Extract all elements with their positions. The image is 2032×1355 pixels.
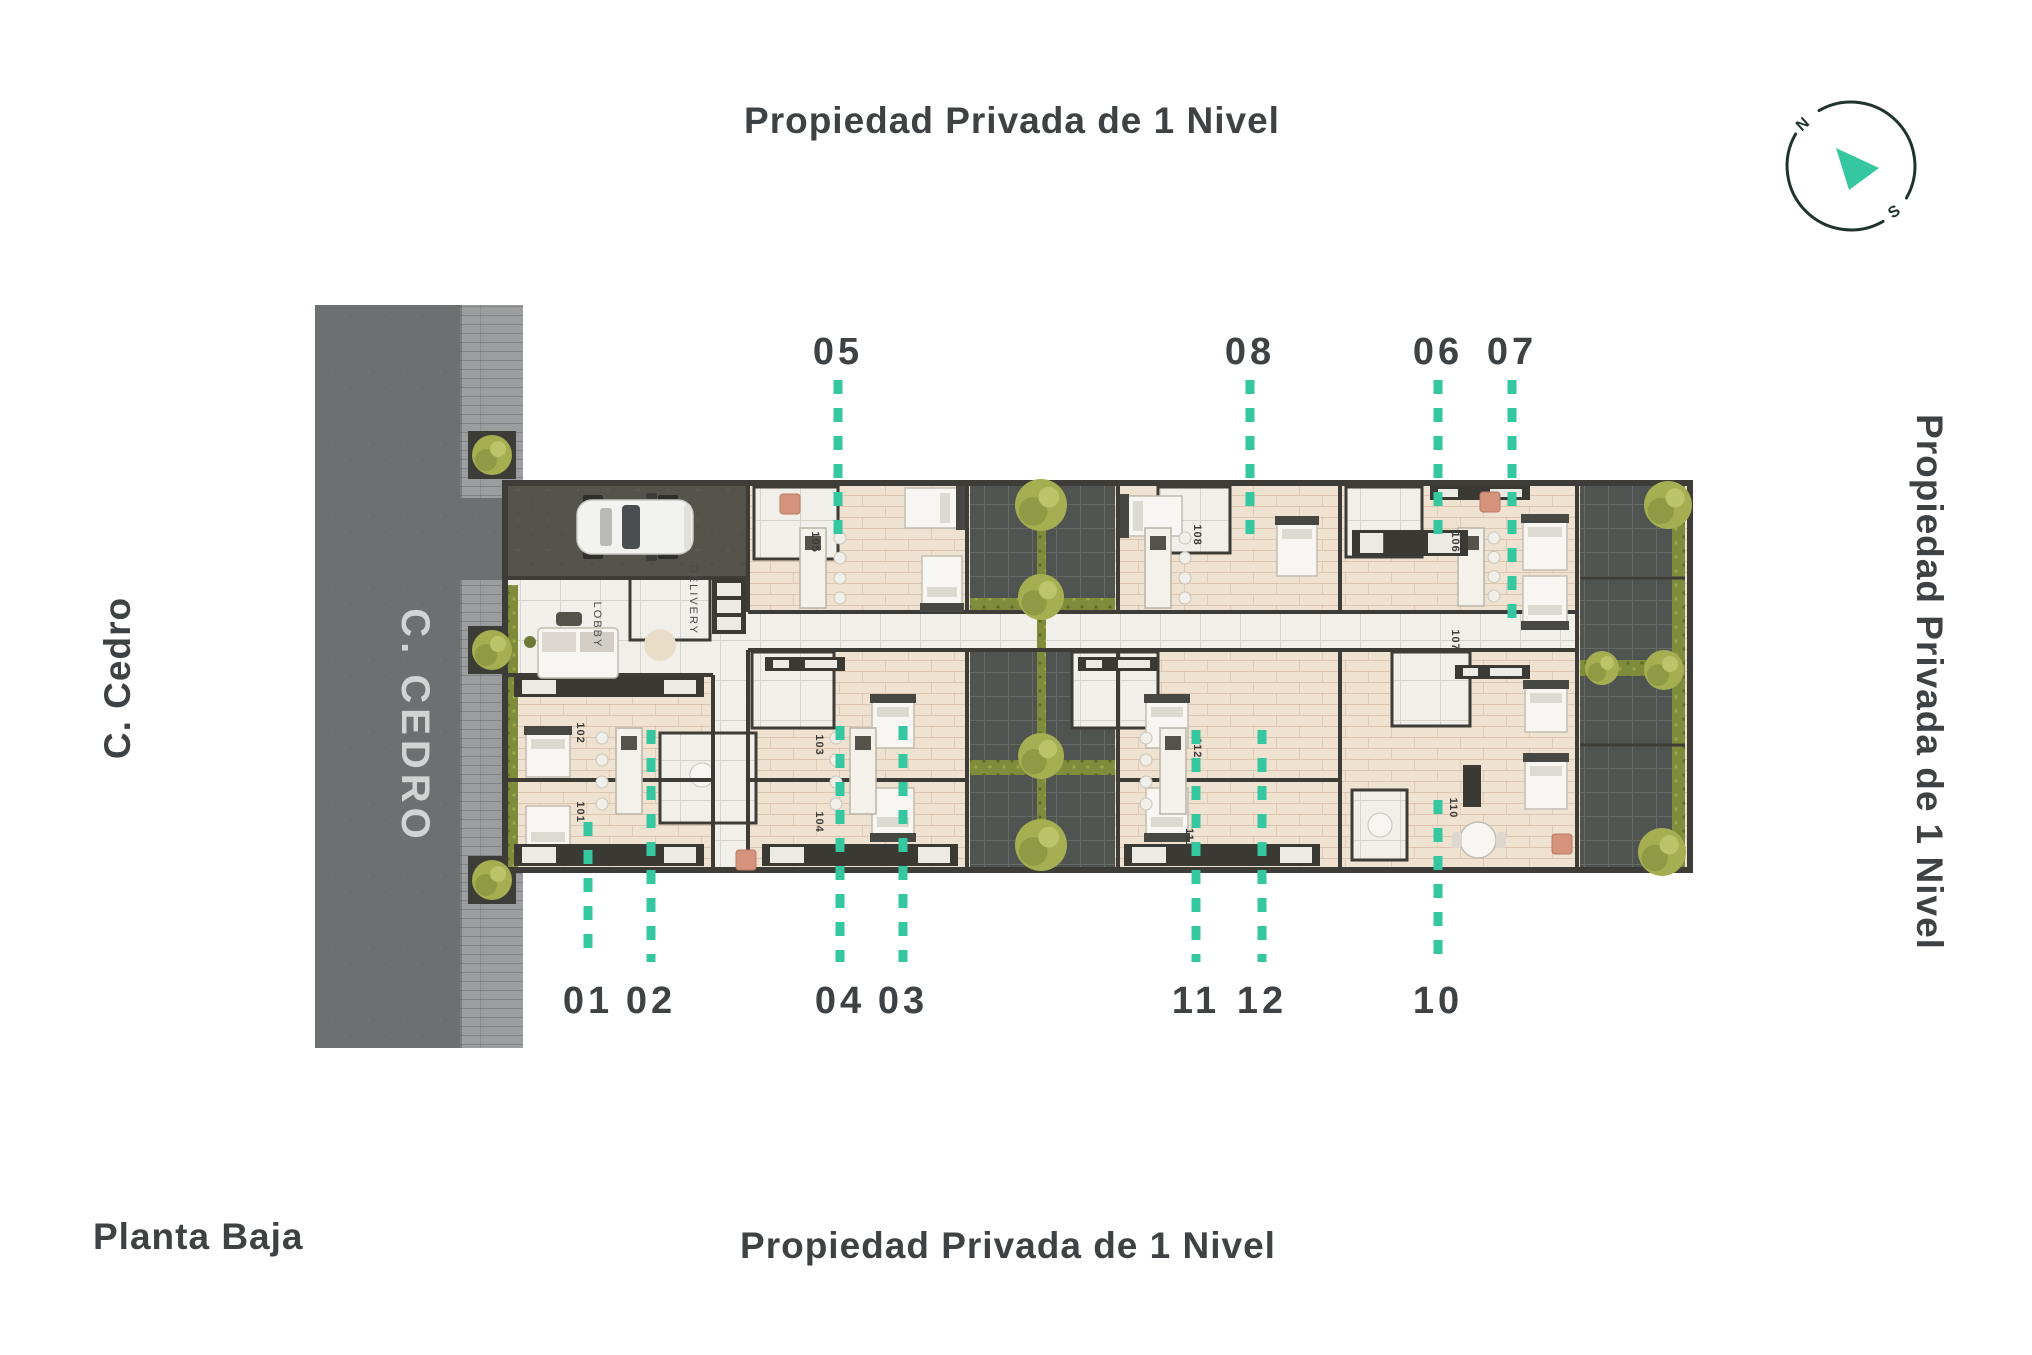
circle xyxy=(490,441,506,457)
driveway xyxy=(460,498,507,580)
appliance xyxy=(664,847,696,863)
bed-headboard xyxy=(1275,516,1319,525)
bed-headboard xyxy=(920,603,964,612)
bed xyxy=(920,556,964,612)
locker-slot xyxy=(717,617,741,630)
bed xyxy=(1523,680,1569,732)
building: LOBBY DELIVERY 1051081061071101021011031… xyxy=(505,483,1690,870)
street-asphalt xyxy=(315,305,460,1048)
stool xyxy=(1179,592,1191,604)
callout-label-11: 11 xyxy=(1172,980,1220,1022)
appliance xyxy=(773,660,789,668)
appliance xyxy=(522,680,556,694)
tree-icon xyxy=(472,630,512,670)
plant-pot xyxy=(524,636,536,648)
compass-needle-icon xyxy=(1836,148,1879,190)
counter xyxy=(1124,844,1320,866)
stool xyxy=(1179,552,1191,564)
tree-icon xyxy=(1644,650,1684,690)
circle xyxy=(1460,822,1496,858)
terracotta-pot xyxy=(1480,492,1500,512)
lobby-rug xyxy=(644,629,676,661)
room-number-102: 102 xyxy=(574,722,586,743)
callout-label-06: 06 xyxy=(1413,331,1463,373)
bed-headboard xyxy=(870,694,916,703)
lobby-armchair xyxy=(556,612,582,626)
title-right: Propiedad Privada de 1 Nivel xyxy=(1909,414,1950,950)
callout-label-05: 05 xyxy=(813,331,863,373)
circle xyxy=(1666,488,1685,507)
counter xyxy=(762,844,958,866)
rect xyxy=(1525,684,1567,732)
street-name-label: C. Cedro xyxy=(97,597,138,759)
callout-label-01: 01 xyxy=(563,980,613,1022)
stool xyxy=(830,798,842,810)
bed xyxy=(524,726,572,777)
stool xyxy=(834,552,846,564)
rect xyxy=(1523,518,1567,570)
bed-headboard xyxy=(1521,514,1569,523)
bed xyxy=(870,788,916,842)
bed-pillow xyxy=(1151,707,1183,717)
room-number-106: 106 xyxy=(1449,531,1461,552)
tree-icon xyxy=(1638,828,1686,876)
delivery-lockers xyxy=(712,578,746,634)
cooktop xyxy=(1165,736,1181,750)
counter xyxy=(514,677,704,697)
appliance xyxy=(805,660,837,668)
rect xyxy=(1525,757,1567,809)
counter xyxy=(1455,665,1530,679)
tree-icon xyxy=(472,435,512,475)
bed-pillow xyxy=(1133,501,1143,531)
stool xyxy=(834,572,846,584)
bed xyxy=(1275,516,1319,576)
appliance xyxy=(1086,660,1102,668)
terracotta-pot xyxy=(780,494,800,514)
bed-headboard xyxy=(524,726,572,735)
street-road-label: C. CEDRO xyxy=(393,608,437,844)
stool xyxy=(1140,754,1152,766)
tree-icon xyxy=(1018,733,1064,779)
chair xyxy=(1452,832,1462,848)
bed-pillow xyxy=(531,739,565,749)
cooktop xyxy=(621,736,637,750)
car-windshield xyxy=(622,505,640,549)
stool xyxy=(596,732,608,744)
car xyxy=(577,493,693,561)
bed-pillow xyxy=(1528,527,1562,537)
circle xyxy=(490,866,506,882)
appliance xyxy=(1280,847,1312,863)
rect xyxy=(905,488,961,528)
rect xyxy=(1523,576,1567,626)
counter xyxy=(1463,765,1481,807)
tree-icon xyxy=(1644,481,1692,529)
room-number-105: 105 xyxy=(809,531,821,552)
circle xyxy=(1038,827,1059,848)
room-number-110: 110 xyxy=(1447,798,1459,819)
curb-line xyxy=(460,305,462,1048)
bed-pillow xyxy=(940,493,950,523)
locker-slot xyxy=(717,583,741,596)
compass-ring xyxy=(1819,102,1915,198)
room-number-101: 101 xyxy=(574,801,586,822)
lobby-label: LOBBY xyxy=(591,602,603,649)
bed xyxy=(1521,576,1569,630)
callout-label-07: 07 xyxy=(1487,331,1537,373)
bed xyxy=(905,486,965,530)
bed-pillow xyxy=(1528,605,1562,615)
bed xyxy=(1523,753,1569,809)
bathtub xyxy=(690,763,714,787)
terracotta-pot xyxy=(1552,834,1572,854)
room-number-103: 103 xyxy=(813,734,825,755)
compass-south-label: S xyxy=(1885,202,1904,222)
sofa-cushion xyxy=(542,632,576,652)
callout-label-10: 10 xyxy=(1413,980,1463,1022)
stool xyxy=(596,798,608,810)
chair xyxy=(1496,832,1506,848)
tree-icon xyxy=(1015,479,1067,531)
appliance xyxy=(1463,668,1478,676)
counter xyxy=(1078,657,1158,671)
bathtub xyxy=(1368,813,1392,837)
appliance xyxy=(1490,668,1522,676)
stool xyxy=(1179,572,1191,584)
stool xyxy=(1179,532,1191,544)
stool xyxy=(1140,732,1152,744)
floorplan-canvas: C. CEDRO xyxy=(0,0,2032,1355)
cooktop xyxy=(1150,536,1166,550)
circle xyxy=(1039,740,1057,758)
rect xyxy=(872,788,914,838)
callout-label-03: 03 xyxy=(878,980,928,1022)
floor-name-label: Planta Baja xyxy=(93,1216,303,1257)
callout-label-04: 04 xyxy=(815,980,865,1022)
tree-icon xyxy=(472,860,512,900)
locker-slot xyxy=(717,600,741,613)
stool xyxy=(596,776,608,788)
bed-pillow xyxy=(1151,817,1183,827)
cooktop xyxy=(855,736,871,750)
rect xyxy=(1463,765,1481,807)
room-number-107: 107 xyxy=(1449,629,1461,650)
street-area: C. CEDRO xyxy=(315,305,523,1048)
counter xyxy=(765,657,845,671)
tree-icon xyxy=(1018,574,1064,620)
car-rear-window xyxy=(600,508,612,546)
bed xyxy=(1521,514,1569,570)
bed-pillow xyxy=(1530,766,1562,776)
room-number-104: 104 xyxy=(813,811,825,832)
bathroom-block xyxy=(1392,652,1470,726)
title-bottom: Propiedad Privada de 1 Nivel xyxy=(740,1225,1276,1266)
bed-headboard xyxy=(1144,694,1190,703)
appliance xyxy=(1118,660,1150,668)
stool xyxy=(1488,590,1500,602)
counter xyxy=(514,844,704,866)
tree-icon xyxy=(1585,651,1619,685)
stool xyxy=(1140,798,1152,810)
compass-north-label: N xyxy=(1793,114,1813,134)
circle xyxy=(1039,581,1057,599)
rect xyxy=(1277,520,1317,576)
bed-headboard xyxy=(956,486,965,530)
stool xyxy=(596,754,608,766)
car-mirror-left xyxy=(646,493,657,499)
bed-headboard xyxy=(870,833,916,842)
bed-pillow xyxy=(927,587,957,597)
callout-label-08: 08 xyxy=(1225,331,1275,373)
bed-headboard xyxy=(1521,621,1569,630)
stool xyxy=(1488,532,1500,544)
bed-pillow xyxy=(1282,529,1312,539)
bed-headboard xyxy=(1523,680,1569,689)
circle xyxy=(490,636,506,652)
callout-label-02: 02 xyxy=(626,980,676,1022)
bed xyxy=(870,694,916,748)
stool xyxy=(834,592,846,604)
patio-green-spine xyxy=(1037,486,1046,868)
title-top: Propiedad Privada de 1 Nivel xyxy=(744,100,1280,141)
circle xyxy=(1660,835,1679,854)
bed-pillow xyxy=(1530,693,1562,703)
stool xyxy=(1488,571,1500,583)
bed-pillow xyxy=(877,707,909,717)
appliance xyxy=(522,847,556,863)
stool xyxy=(1140,776,1152,788)
rect xyxy=(922,556,962,608)
circle xyxy=(1038,487,1059,508)
bed-headboard xyxy=(1120,494,1129,538)
bed-headboard xyxy=(1523,753,1569,762)
appliance xyxy=(918,847,950,863)
appliance xyxy=(1360,533,1383,553)
callout-label-12: 12 xyxy=(1237,980,1287,1022)
room-number-108: 108 xyxy=(1191,524,1203,545)
circle xyxy=(1662,656,1678,672)
bed-pillow xyxy=(531,832,565,842)
stool xyxy=(1488,551,1500,563)
terracotta-pot xyxy=(736,850,756,870)
appliance xyxy=(770,847,804,863)
appliance xyxy=(664,680,696,694)
appliance xyxy=(1132,847,1166,863)
rect xyxy=(526,730,570,777)
tree-icon xyxy=(1015,819,1067,871)
car-mirror-right xyxy=(646,555,657,561)
floorplan-page: C. CEDRO xyxy=(0,0,2032,1355)
compass: N S xyxy=(1787,102,1915,230)
rect xyxy=(872,698,914,748)
circle xyxy=(1600,656,1614,670)
delivery-label: DELIVERY xyxy=(687,565,699,635)
